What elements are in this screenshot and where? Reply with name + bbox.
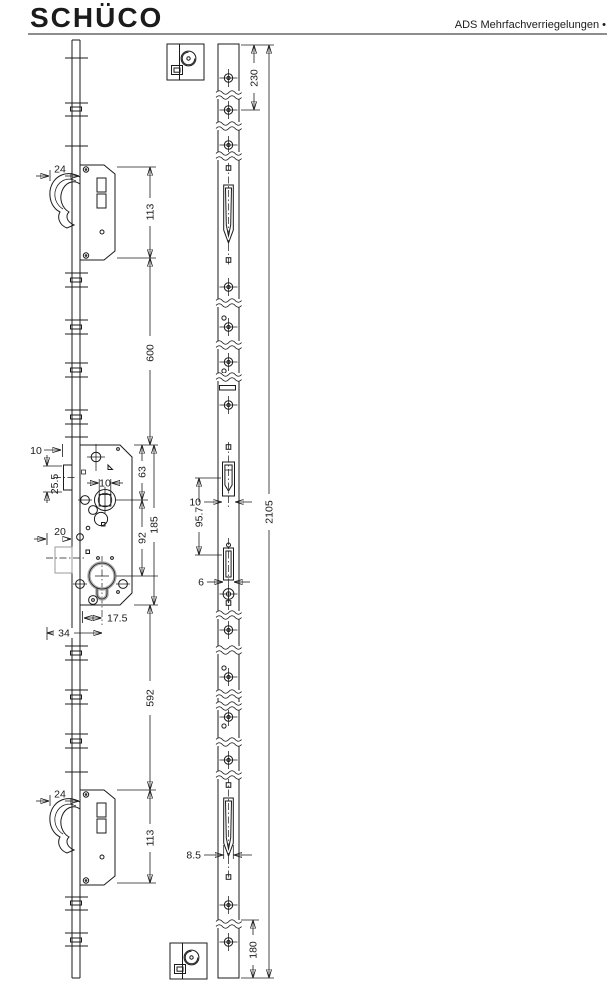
dim-top-to-center-spacing: 600 — [145, 344, 157, 362]
catalog-page: SCHÜCO ADS Mehrfachverriegelungen • — [0, 0, 610, 994]
dim-top-screw-spacing: 230 — [249, 69, 261, 87]
dim-hook-slot-width: 8.5 — [186, 850, 201, 862]
dim-bottom-screw-spacing: 180 — [248, 941, 260, 959]
dim-bottom-lock-height: 113 — [145, 829, 157, 846]
dim-follower-to-cylinder: 92 — [137, 532, 149, 544]
dim-case-offset: 34 — [58, 628, 70, 640]
faceplate-view: 230 2105 95.7 10 6 8.5 180 — [167, 44, 276, 979]
dim-follower-square: 10 — [99, 478, 111, 490]
detail-symbol-icon — [167, 44, 204, 80]
dim-slot-length: 25.5 — [49, 474, 61, 495]
dim-top-lock-height: 113 — [145, 203, 157, 220]
brand-logo: SCHÜCO — [30, 2, 163, 33]
dim-latch-to-bolt: 95.7 — [194, 507, 206, 528]
dim-top-lock-backset: 24 — [54, 164, 66, 176]
dim-bottom-lock-backset: 24 — [54, 789, 66, 801]
dim-total-length: 2105 — [264, 500, 276, 524]
striker-plate-mark — [220, 386, 236, 391]
side-view: 24 113 600 — [30, 40, 160, 978]
dim-bolt-slot-width: 6 — [198, 577, 204, 589]
page-header: SCHÜCO ADS Mehrfachverriegelungen • — [28, 2, 607, 34]
top-hook-lock: 24 113 — [36, 164, 157, 261]
dim-latch-slot-width: 10 — [189, 497, 201, 509]
dim-center-to-bottom-spacing: 592 — [145, 689, 157, 707]
dim-case-height: 185 — [149, 516, 161, 534]
page-title: ADS Mehrfachverriegelungen • — [455, 19, 606, 31]
technical-drawing: SCHÜCO ADS Mehrfachverriegelungen • — [0, 0, 610, 994]
dim-cylinder-offset: 17.5 — [107, 613, 128, 625]
bottom-hook-lock: 24 113 — [36, 789, 157, 886]
dim-handle-plate-width: 20 — [54, 526, 66, 538]
dim-faceplate-width: 10 — [30, 445, 42, 457]
detail-symbol-icon — [170, 943, 207, 979]
dim-top-to-follower: 63 — [137, 466, 149, 478]
center-gearbox: 10 10 — [30, 444, 160, 640]
faceplate-strip — [218, 44, 239, 978]
